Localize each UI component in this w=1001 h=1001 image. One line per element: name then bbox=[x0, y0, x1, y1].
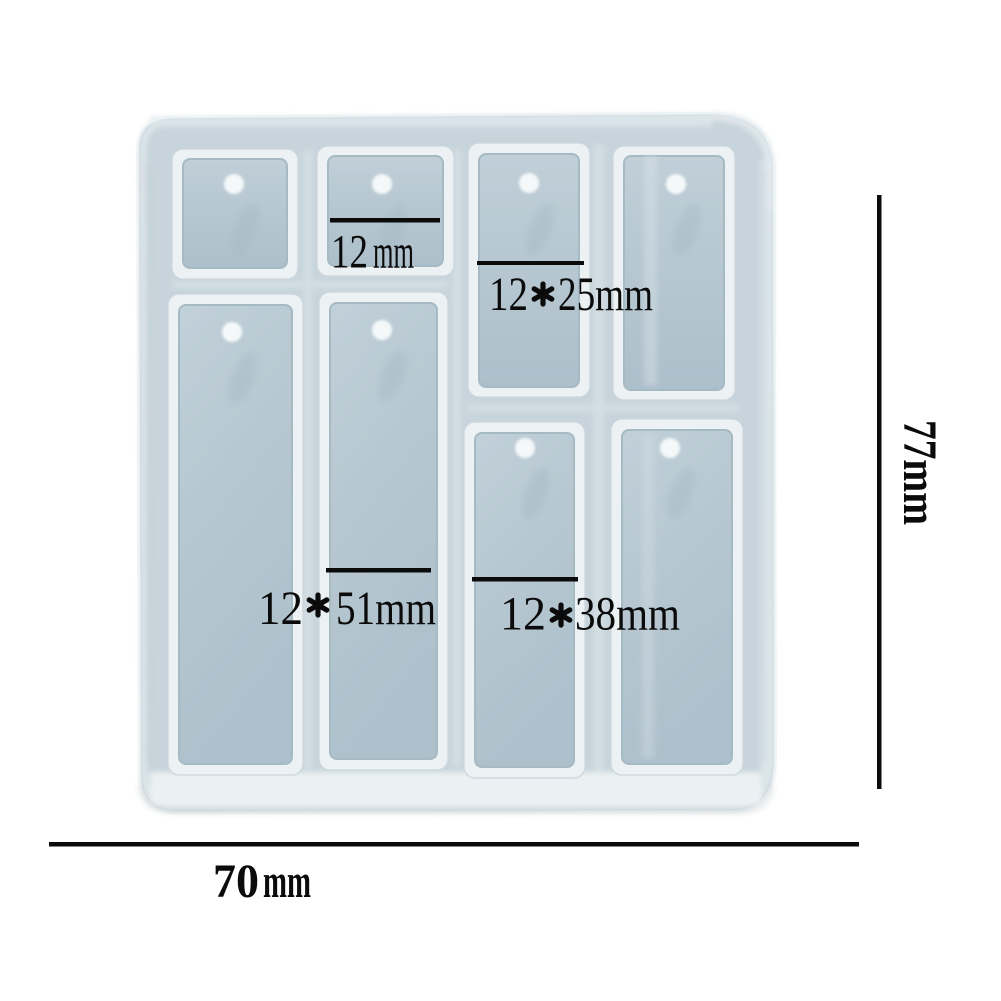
svg-text:38mm: 38mm bbox=[575, 588, 680, 641]
svg-text:51mm: 51mm bbox=[336, 582, 436, 635]
svg-text:mm: mm bbox=[373, 226, 414, 279]
svg-text:70: 70 bbox=[213, 855, 259, 908]
svg-text:25mm: 25mm bbox=[558, 268, 653, 321]
svg-text:12: 12 bbox=[331, 226, 368, 279]
svg-text:mm: mm bbox=[263, 855, 311, 908]
svg-text:77mm: 77mm bbox=[893, 420, 946, 525]
svg-text:12: 12 bbox=[500, 588, 546, 641]
svg-text:12: 12 bbox=[258, 582, 303, 635]
svg-text:12: 12 bbox=[489, 268, 528, 321]
